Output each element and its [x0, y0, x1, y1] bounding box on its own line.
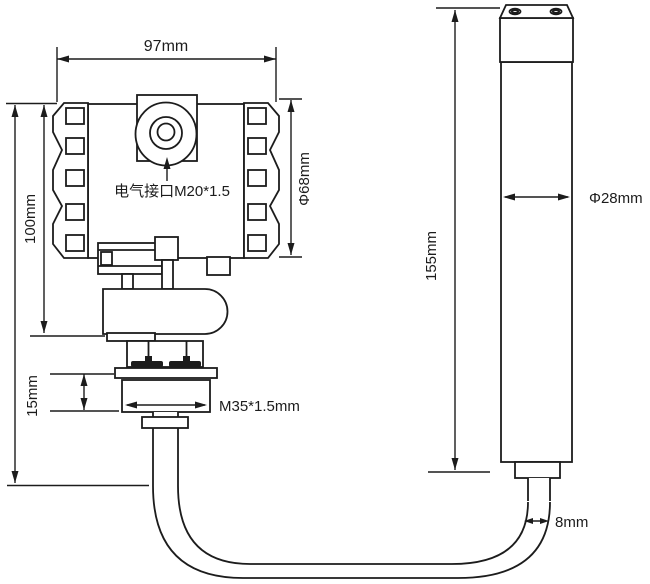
sensor-capsule	[103, 289, 228, 334]
process-thread-label: M35*1.5mm	[219, 398, 300, 415]
dim-probe-length-155: 155mm	[423, 8, 500, 472]
probe-cable-neck	[528, 478, 550, 501]
dim-thread-height-label: 15mm	[24, 375, 41, 417]
dim-cable-diameter-label: 8mm	[555, 514, 588, 531]
probe-collar	[515, 462, 560, 478]
probe-cap	[500, 18, 573, 62]
electrical-interface-label: 电气接口M20*1.5	[114, 183, 230, 200]
dimension-drawing: 97mm 100mm Φ68mm	[0, 0, 650, 584]
housing-right-cap	[244, 103, 279, 258]
dim-probe-diameter-label: Φ28mm	[589, 190, 643, 207]
dim-height-label: 100mm	[22, 194, 39, 244]
cable-gland-bore	[158, 124, 175, 141]
connecting-cable	[153, 486, 550, 578]
flange-plate	[115, 368, 217, 378]
dim-probe-length-label: 155mm	[423, 231, 440, 281]
dim-width-97: 97mm	[57, 38, 276, 102]
dim-width-label: 97mm	[144, 38, 188, 55]
dim-housing-diameter-68: Φ68mm	[279, 99, 313, 257]
tube-flange	[142, 417, 188, 428]
dim-cable-diameter-8: 8mm	[524, 514, 588, 531]
capsule-step-plate	[107, 333, 155, 341]
connection-neck	[127, 341, 203, 367]
probe-body	[501, 62, 572, 462]
housing-left-cap	[53, 103, 88, 258]
probe-view	[500, 5, 573, 501]
dim-thread-height-15: 15mm	[24, 374, 119, 417]
dim-housing-diameter-label: Φ68mm	[296, 152, 313, 206]
drawing-svg: 97mm 100mm Φ68mm	[0, 0, 650, 584]
